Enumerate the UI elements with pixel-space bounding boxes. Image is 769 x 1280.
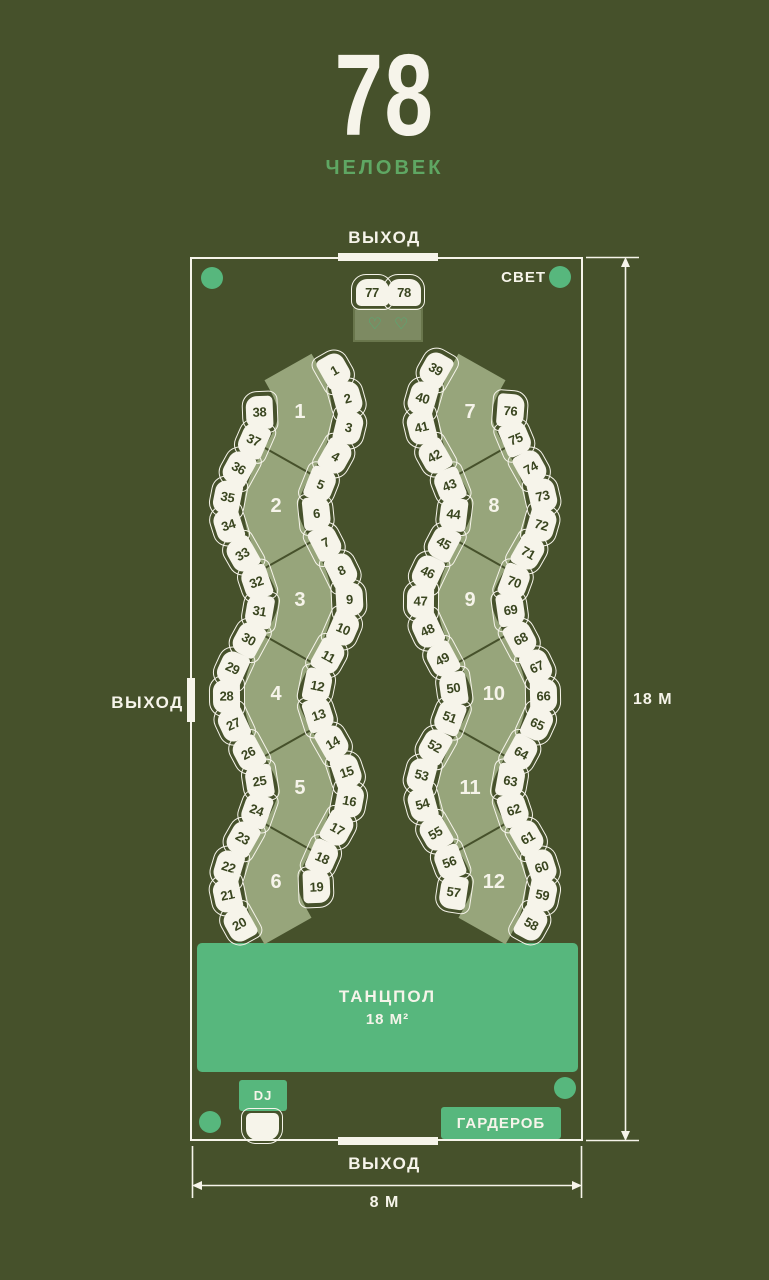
seat-number: 9 [346,593,354,606]
seat-number: 63 [503,773,519,788]
seat-number: 15 [338,763,355,780]
table-segment-label: 5 [285,777,315,800]
seat-number: 50 [446,681,462,696]
table-segment-label: 12 [479,871,509,894]
seat-number: 17 [328,820,346,838]
seat-number: 20 [230,915,248,933]
seat-number: 13 [310,706,327,723]
seat-number: 25 [252,774,268,789]
table-segment-label: 2 [261,495,291,518]
seat-number: 68 [512,629,530,647]
seat-number: 37 [245,432,263,449]
seat-number: 38 [253,405,267,419]
seat-number: 59 [535,887,551,902]
seat-number: 4 [330,449,342,464]
seat-number: 30 [239,631,257,649]
seat-number: 33 [233,545,251,563]
seat-number: 47 [413,595,427,608]
seat-number: 5 [315,477,326,492]
seat-number: 18 [313,849,331,866]
seat-number: 55 [426,825,444,843]
seat-number: 21 [219,888,235,904]
seat[interactable]: 19 [302,869,330,903]
seat-number: 58 [522,914,540,932]
seat-number: 75 [506,430,524,447]
seat-number: 44 [446,507,461,522]
seat-number: 54 [414,797,431,813]
seat-number: 69 [503,602,519,617]
seat-number: 1 [328,363,340,378]
seat-number: 70 [505,573,523,590]
seat-number: 74 [521,458,539,476]
seat-number: 61 [518,828,536,846]
seat-number: 52 [426,738,444,756]
table-segment-label: 6 [261,871,291,894]
seat-number: 24 [248,802,265,819]
seat-number: 78 [397,286,411,299]
seat-number: 62 [505,801,522,818]
table-segment-label: 3 [285,589,315,612]
seat-number: 60 [532,858,549,875]
seat-number: 26 [240,744,258,762]
seat-number: 34 [220,517,237,534]
seat-number: 8 [336,563,348,578]
table-segment-label: 11 [455,777,485,800]
table-segment-label: 10 [479,683,509,706]
seat-number: 32 [248,574,265,591]
seat-number: 76 [503,403,518,417]
seat-number: 45 [434,534,452,552]
seat-number: 12 [309,678,325,693]
seat-number: 27 [224,716,242,734]
seat-number: 73 [534,488,550,504]
seat-number: 66 [537,688,551,701]
seat-number: 2 [343,391,353,405]
seat-number: 40 [414,390,431,406]
seat-number: 11 [320,648,338,666]
seat-number: 72 [533,516,550,532]
seat-number: 10 [335,619,353,636]
seat-number: 64 [513,743,531,761]
seat-number: 51 [441,709,459,726]
seat-number: 53 [414,768,431,784]
seat-number: 65 [528,715,546,733]
seat-number: 19 [309,879,323,893]
dj-chair[interactable] [246,1113,279,1140]
seat-number: 46 [419,564,437,582]
seat-number: 57 [446,885,462,900]
seat-number: 41 [413,419,430,435]
seat-number: 36 [229,460,247,478]
seat[interactable]: 77 [356,279,389,306]
seat-number: 43 [440,477,458,494]
seat-number: 56 [441,854,459,871]
seat-number: 77 [365,286,379,299]
table-segment-label: 4 [261,683,291,706]
floor-plan-page: { "header": { "count": "78", "label": "Ч… [0,0,769,1280]
seat-number: 7 [320,535,332,550]
seat-number: 39 [427,360,445,378]
seat[interactable]: 78 [388,279,421,306]
table-segment-label: 8 [479,495,509,518]
seat-number: 3 [343,420,353,434]
seat-number: 6 [312,507,320,521]
seat-number: 22 [220,859,237,875]
seat-number: 23 [233,830,251,848]
table-segment-label: 7 [455,401,485,424]
floor-plan-canvas [0,0,769,1280]
seat-number: 31 [251,604,267,619]
seat-number: 67 [527,658,545,676]
seat-number: 71 [519,543,537,561]
seat-number: 48 [418,622,436,640]
seat[interactable]: 57 [438,874,470,911]
table-segment-label: 9 [455,589,485,612]
seat-number: 29 [224,659,242,677]
seat-number: 49 [434,651,452,669]
seat-number: 14 [324,734,342,752]
seat-number: 28 [219,690,233,703]
seat-number: 16 [341,792,357,807]
table-segment-label: 1 [285,401,315,424]
seat-number: 42 [425,447,443,465]
seat-number: 35 [219,490,235,505]
